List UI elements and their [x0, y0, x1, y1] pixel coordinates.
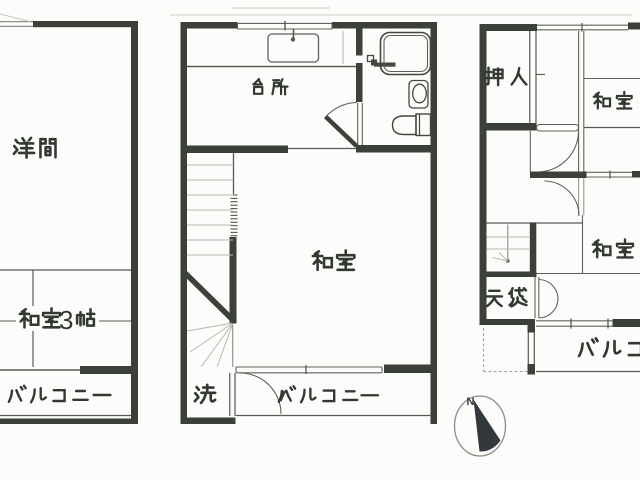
svg-text:3: 3	[59, 305, 73, 335]
svg-text:N: N	[467, 396, 475, 408]
